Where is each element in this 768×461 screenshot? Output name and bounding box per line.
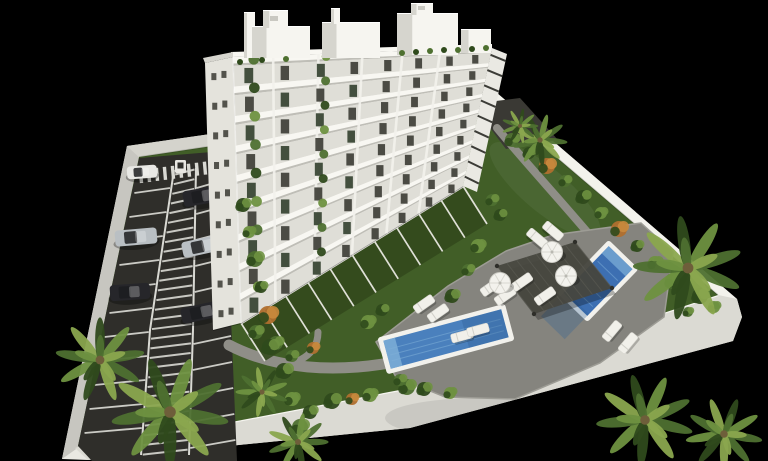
roof-structure-shade [263,10,269,28]
window [411,97,418,107]
side-window [211,73,216,80]
pergola-post [573,240,577,244]
window [448,185,454,194]
window [384,60,391,71]
window [351,62,359,74]
window [446,56,452,65]
roof-structure-shade [331,8,334,24]
window [433,145,439,154]
window [379,123,386,134]
window [344,199,352,211]
balcony-plant [320,125,329,134]
side-window [216,221,221,228]
roof-structure-shade [397,13,412,55]
balcony-glazing [347,131,355,143]
window [441,92,447,101]
window [281,173,289,187]
window [405,155,412,165]
window [373,207,380,218]
window [457,136,463,145]
palm-crown-center [96,356,105,365]
window [460,120,466,129]
window [415,58,422,68]
window [436,127,442,136]
side-window [212,103,217,110]
window [342,245,350,257]
window [451,168,457,177]
balcony-plant [251,168,262,179]
window [399,213,406,223]
palm-crown-center [720,430,728,438]
balcony-glazing [281,253,289,267]
side-window [218,281,223,288]
window [383,81,390,92]
pergola-post [610,286,614,290]
window [409,116,416,126]
car-roof [129,286,140,298]
side-window [214,162,219,169]
window [281,119,289,133]
window [281,280,289,294]
roof-plant [469,46,475,52]
balcony-glazing [247,183,256,198]
balcony-glazing [250,298,259,313]
window [466,87,472,96]
balcony-glazing [246,125,255,140]
rooftop-unit [418,6,425,10]
balcony-glazing [343,222,351,234]
balcony-glazing [349,85,357,97]
balcony-glazing [281,93,289,107]
window [315,138,323,151]
window [403,174,410,184]
window [314,187,322,200]
balcony-plant [318,223,327,232]
side-window [228,278,233,285]
window [381,102,388,113]
window [346,153,354,165]
side-window [222,101,227,108]
palm-crown-center [259,389,264,394]
side-window [217,251,222,258]
roof-plant [427,48,433,54]
pergola-post [495,264,499,268]
balcony-glazing [316,113,324,126]
window [472,55,478,64]
window [431,162,437,171]
balcony-glazing [313,262,321,275]
window [281,226,289,240]
palm-crown-center [640,415,650,425]
balcony-plant [321,76,330,85]
car-roof [135,231,147,243]
balcony-glazing [281,146,289,160]
palm-crown-center [518,124,522,128]
window [428,180,434,189]
car-roof [141,168,149,177]
roof-plant [441,47,447,53]
window [401,193,408,203]
side-window [229,308,234,315]
window [426,197,432,206]
balcony-plant [250,139,261,150]
palm-crown-center [164,406,176,418]
side-window [226,219,231,226]
balcony-plant [318,199,327,208]
side-window [218,310,223,317]
window [375,186,382,197]
window [372,228,379,239]
side-window [221,71,226,78]
roof-plant [259,57,265,63]
roof-plant [237,59,243,65]
palm-crown-center [537,137,542,142]
window [246,154,255,169]
balcony-plant [317,247,326,256]
window [444,74,450,83]
window [413,78,420,88]
balcony-plant [319,174,328,183]
balcony-glazing [345,176,353,188]
palm-crown-center [683,263,694,274]
roof-plant [399,50,405,56]
side-window [223,130,228,137]
window [407,136,414,146]
pergola-post [532,312,536,316]
balcony-glazing [244,68,253,83]
side-window [224,160,229,167]
balcony-plant [319,150,328,159]
render-canvas [0,0,768,461]
parking-sign-panel [178,163,184,169]
roof-plant [483,45,489,51]
window [378,144,385,155]
site-render [0,0,768,461]
balcony-plant [251,196,262,207]
window [348,108,356,120]
window [439,109,445,118]
side-window [213,132,218,139]
roof-plant [283,56,289,62]
window [245,97,254,112]
side-window [215,192,220,199]
car-roof [200,305,213,318]
window [316,89,324,102]
balcony-glazing [315,163,323,176]
balcony-plant [250,111,261,122]
window [469,71,475,80]
roof-structure-shade [244,12,247,58]
roof-plant [413,49,419,55]
roof-structure-shade [322,22,337,58]
palm-crown-center [295,439,301,445]
window [248,211,257,226]
window [376,165,383,176]
roof-plant [455,47,461,53]
window [281,66,289,80]
side-window [225,189,230,196]
balcony-plant [321,101,330,110]
roof-structure-shade [252,26,267,58]
balcony-glazing [317,64,325,77]
roof-structure-shade [461,29,469,53]
window [463,104,469,113]
balcony-plant [249,82,260,93]
side-window [227,248,232,255]
roof-structure-shade [411,3,417,15]
rooftop-unit [270,16,278,21]
balcony-glazing [281,199,289,213]
window [454,152,460,161]
